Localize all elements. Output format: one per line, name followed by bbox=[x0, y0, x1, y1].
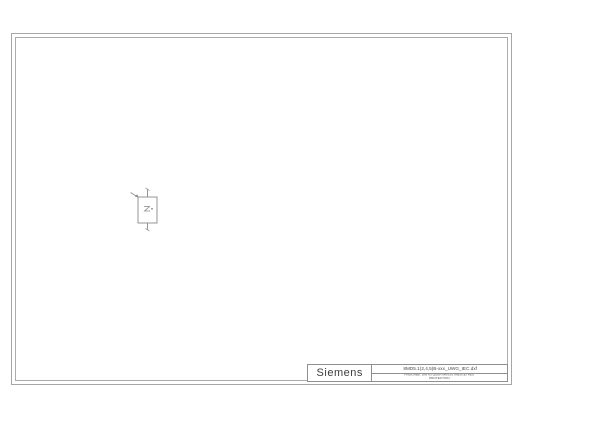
drawing-sheet: Siemens 8MD5.1(2,4,5)B-xxx_UWG_IEC.dxf F… bbox=[0, 0, 600, 424]
drawing-filename: 8MD5.1(2,4,5)B-xxx_UWG_IEC.dxf bbox=[403, 366, 477, 371]
note-line-2: PROTECTION bbox=[405, 377, 475, 381]
title-block-info: 8MD5.1(2,4,5)B-xxx_UWG_IEC.dxf FREIGABE:… bbox=[372, 365, 507, 381]
drawing-notes-cell: FREIGABE: DIN A3 QUER MASSSTABSGETREU PR… bbox=[372, 374, 507, 382]
drawing-filename-cell: 8MD5.1(2,4,5)B-xxx_UWG_IEC.dxf bbox=[372, 365, 507, 374]
electrical-component-symbol-icon bbox=[126, 184, 166, 234]
sheet-inner-border bbox=[15, 37, 508, 381]
drawing-notes: FREIGABE: DIN A3 QUER MASSSTABSGETREU PR… bbox=[405, 374, 475, 381]
siemens-wordmark: Siemens bbox=[308, 365, 372, 381]
title-block: Siemens 8MD5.1(2,4,5)B-xxx_UWG_IEC.dxf F… bbox=[307, 364, 508, 382]
